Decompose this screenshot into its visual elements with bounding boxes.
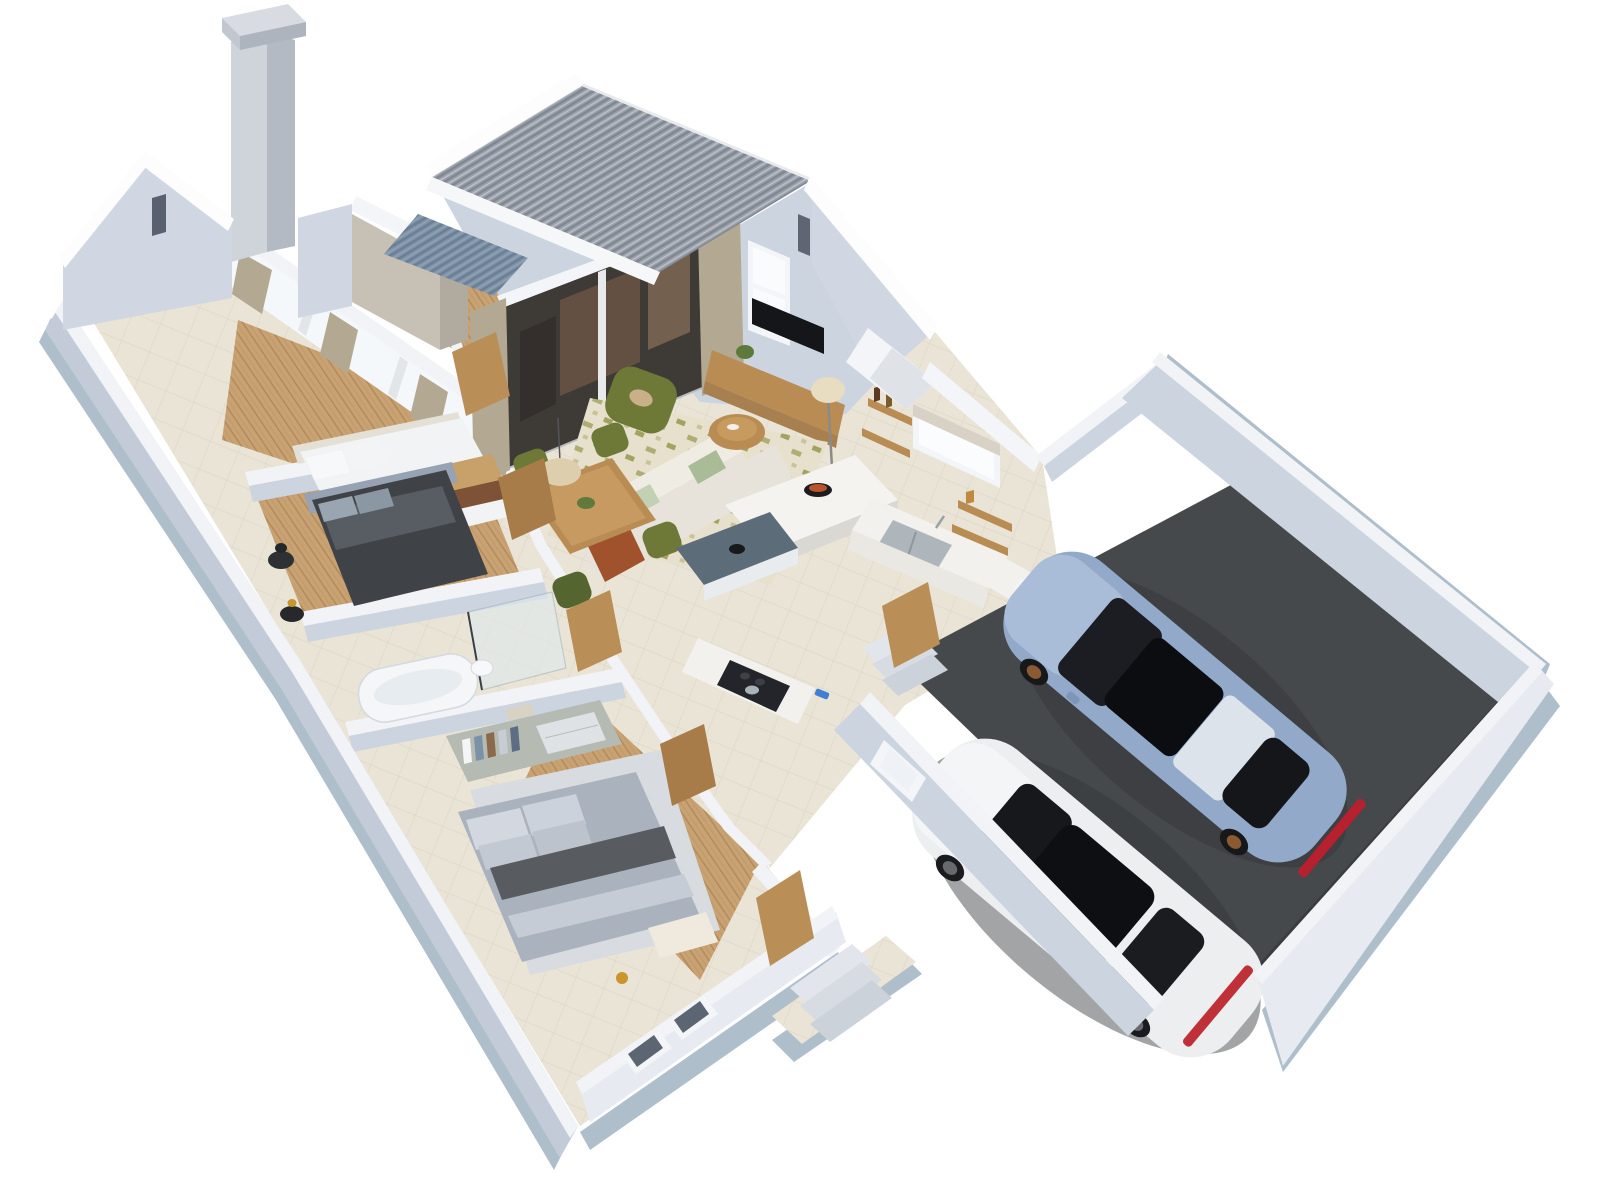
chimney-shaft-front	[231, 32, 267, 262]
island-fruit	[809, 484, 827, 492]
bed2-gold-lamp	[288, 599, 297, 607]
page-canvas	[0, 0, 1600, 1200]
console-plant	[736, 345, 754, 359]
floor-lamp-shade	[811, 377, 845, 403]
bed2-side-table	[280, 606, 304, 622]
bed1-lamp	[275, 543, 287, 553]
burner-1	[740, 673, 750, 680]
bed1-side-table	[268, 551, 294, 569]
sliding-door-mullion	[598, 269, 606, 414]
house-floorplan-3d-render	[0, 0, 1600, 1200]
chimney-shaft-side	[267, 32, 295, 252]
gable-center-left	[298, 204, 352, 318]
dining-centerpiece-plant	[577, 497, 595, 509]
burner-pot	[745, 686, 759, 695]
shelf-2-jar	[966, 490, 974, 504]
fireplace-decor	[729, 544, 745, 554]
burner-2	[755, 679, 765, 686]
coffee-table-decor	[727, 424, 739, 430]
master-gold-lamp	[616, 972, 628, 984]
gable-slot-window-living	[798, 214, 810, 256]
washbasin	[471, 660, 493, 676]
gable-slot-window-wing	[152, 194, 166, 236]
glass-reflection-dark	[520, 316, 556, 422]
